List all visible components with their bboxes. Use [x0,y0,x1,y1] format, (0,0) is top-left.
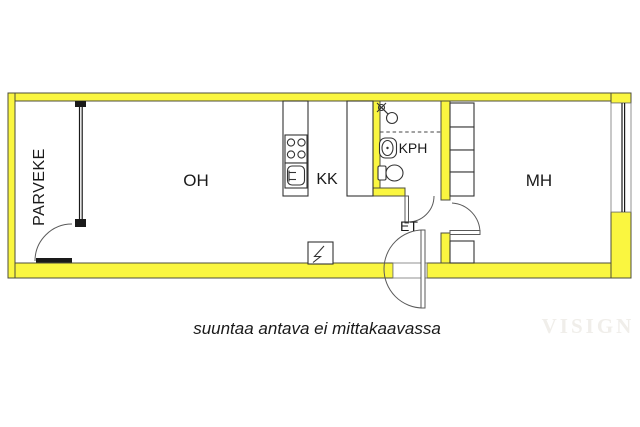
left-wall [8,93,15,278]
wardrobe-unit [450,150,474,172]
wardrobe-unit [450,241,474,263]
balcony-door [35,224,72,263]
toilet-icon [378,165,403,181]
wardrobe-unit [450,172,474,196]
caption-not-to-scale: suuntaa antava ei mittakaavassa [193,319,441,338]
door-leaf [36,258,72,263]
bedroom-door [450,203,480,235]
kph-bottom-wall [373,188,405,196]
door-leaf [421,230,425,308]
room-label-mh: MH [526,171,552,190]
room-label-kk: KK [316,171,338,188]
et-mh-wall-lower [441,233,450,263]
et-mh-wall-upper [441,101,450,200]
wall-post [75,101,86,107]
right-wall-bottom [611,212,631,278]
room-label-et: ET [400,218,418,234]
bathroom [377,103,441,223]
tall-cabinet [347,101,373,196]
interior-walls [373,101,450,263]
room-label-parveke: PARVEKE [31,148,48,226]
bottom-wall-left [8,263,393,278]
bedroom [450,103,480,263]
top-wall [8,93,631,101]
right-wall-top [611,93,631,103]
washbasin-icon [380,138,397,158]
window-opening [611,103,631,212]
door-swing-arc [35,224,72,261]
floor-plan-drawing: PARVEKE OH KK KPH ET MH VISIGN suuntaa a… [0,0,640,427]
electrical-panel-icon [308,242,333,264]
door-swing-arc [452,203,480,233]
floor-plan: PARVEKE OH KK KPH ET MH VISIGN suuntaa a… [0,0,640,427]
door-leaf [450,231,480,235]
wall-post [75,219,86,227]
room-label-oh: OH [183,171,209,190]
bottom-wall-right [427,263,631,278]
kitchen-sink-icon [285,163,307,188]
bedroom-window [611,103,631,212]
room-label-kph: KPH [399,140,428,156]
wardrobe-unit [450,103,474,127]
watermark: VISIGN [542,314,635,338]
stove-icon [285,135,307,163]
wardrobe-unit [450,127,474,150]
